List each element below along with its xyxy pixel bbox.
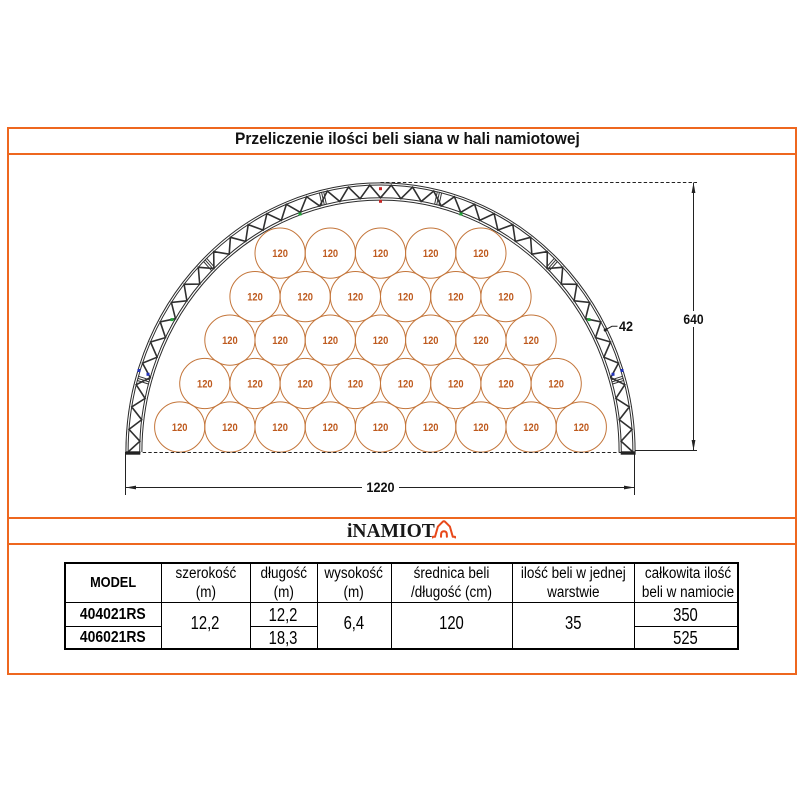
svg-text:120: 120: [473, 335, 489, 347]
svg-text:120: 120: [323, 422, 339, 434]
svg-text:120: 120: [523, 335, 539, 347]
svg-text:120: 120: [448, 291, 464, 303]
svg-text:120: 120: [523, 422, 539, 434]
svg-text:120: 120: [574, 422, 590, 434]
svg-text:120: 120: [247, 378, 263, 390]
svg-text:120: 120: [297, 291, 313, 303]
svg-text:120: 120: [448, 378, 464, 390]
svg-text:120: 120: [297, 378, 313, 390]
svg-text:120: 120: [423, 422, 439, 434]
svg-text:120: 120: [348, 291, 364, 303]
svg-text:120: 120: [398, 291, 414, 303]
svg-text:640: 640: [683, 312, 703, 327]
svg-text:120: 120: [473, 422, 489, 434]
svg-text:120: 120: [272, 248, 288, 260]
svg-text:120: 120: [197, 378, 213, 390]
svg-text:1220: 1220: [366, 480, 394, 495]
svg-text:120: 120: [498, 378, 514, 390]
svg-text:120: 120: [323, 248, 339, 260]
svg-text:120: 120: [373, 422, 389, 434]
svg-text:120: 120: [222, 422, 238, 434]
svg-text:120: 120: [323, 335, 339, 347]
svg-text:120: 120: [172, 422, 188, 434]
svg-text:120: 120: [498, 291, 514, 303]
svg-text:120: 120: [373, 335, 389, 347]
svg-text:120: 120: [398, 378, 414, 390]
svg-text:120: 120: [423, 335, 439, 347]
svg-text:120: 120: [548, 378, 564, 390]
svg-text:120: 120: [222, 335, 238, 347]
svg-text:120: 120: [348, 378, 364, 390]
svg-text:120: 120: [373, 248, 389, 260]
svg-text:120: 120: [423, 248, 439, 260]
svg-text:120: 120: [272, 335, 288, 347]
svg-text:120: 120: [247, 291, 263, 303]
svg-text:120: 120: [473, 248, 489, 260]
svg-text:120: 120: [272, 422, 288, 434]
svg-text:42: 42: [619, 319, 633, 334]
